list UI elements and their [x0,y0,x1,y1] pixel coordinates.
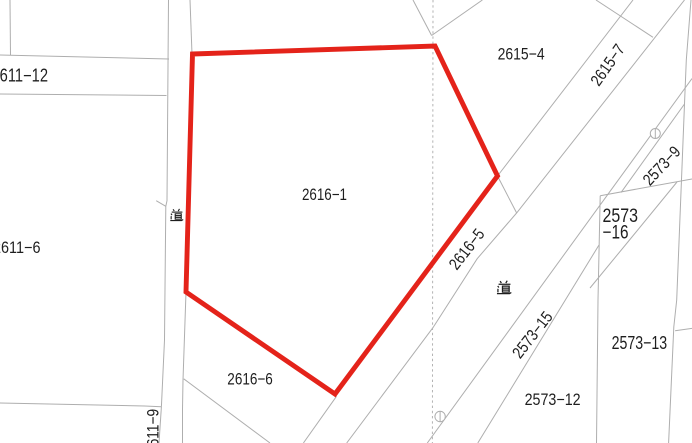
svg-text:2573−12: 2573−12 [525,391,581,409]
svg-text:2611−9: 2611−9 [145,409,163,443]
svg-text:−16: −16 [603,223,629,244]
svg-text:2616−1: 2616−1 [302,186,347,204]
svg-text:2615−4: 2615−4 [498,46,545,64]
svg-text:2616−6: 2616−6 [227,371,272,389]
svg-text:2573−13: 2573−13 [612,332,668,353]
svg-text:2611−6: 2611−6 [0,239,41,257]
svg-text:2611−12: 2611−12 [0,66,48,86]
